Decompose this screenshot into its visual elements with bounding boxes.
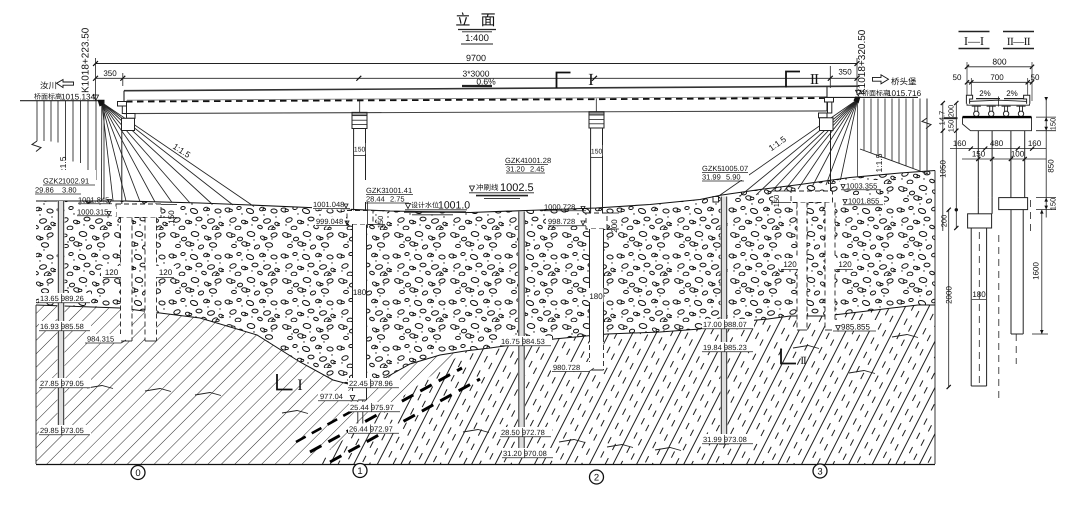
- svg-text:120: 120: [105, 268, 119, 277]
- svg-text:1002.91: 1002.91: [62, 177, 89, 186]
- svg-text:3: 3: [817, 466, 822, 477]
- svg-text:28.44: 28.44: [366, 195, 385, 204]
- svg-text:冲刷线: 冲刷线: [476, 183, 499, 192]
- svg-text:0.6%: 0.6%: [476, 76, 496, 86]
- svg-text:160: 160: [953, 139, 967, 148]
- svg-text:立 面: 立 面: [455, 12, 498, 29]
- svg-text:800: 800: [992, 57, 1006, 67]
- svg-text:25.44 975.97: 25.44 975.97: [350, 403, 394, 412]
- svg-text:1:1.5: 1:1.5: [874, 153, 884, 172]
- svg-text:150: 150: [1049, 198, 1058, 211]
- svg-text:19.84 985.23: 19.84 985.23: [703, 343, 747, 352]
- svg-text:998.728: 998.728: [548, 217, 575, 226]
- svg-text:200: 200: [947, 105, 956, 118]
- svg-text:设计水位: 设计水位: [411, 202, 439, 210]
- svg-text:150: 150: [591, 149, 603, 156]
- svg-text:0: 0: [135, 468, 140, 479]
- svg-text:999.048: 999.048: [316, 217, 343, 226]
- svg-text:150: 150: [972, 150, 986, 159]
- svg-text:I: I: [297, 377, 302, 394]
- svg-text:980.728: 980.728: [553, 363, 580, 372]
- svg-text:31.20 970.08: 31.20 970.08: [503, 449, 547, 458]
- svg-text:984.315: 984.315: [87, 335, 114, 344]
- svg-text:桥头堡: 桥头堡: [891, 77, 917, 87]
- svg-text:180: 180: [589, 292, 603, 301]
- svg-text:GZK2: GZK2: [43, 177, 63, 186]
- svg-text:1001.855: 1001.855: [848, 197, 879, 206]
- svg-text:120: 120: [159, 268, 173, 277]
- svg-text:985.855: 985.855: [841, 323, 870, 332]
- svg-text:150: 150: [772, 195, 781, 208]
- svg-text:2.45: 2.45: [530, 165, 545, 174]
- svg-text:31.20: 31.20: [506, 165, 525, 174]
- svg-text:29.85 973.05: 29.85 973.05: [40, 426, 84, 435]
- svg-text:150: 150: [376, 216, 385, 229]
- svg-text:26.44 972.97: 26.44 972.97: [349, 425, 393, 434]
- svg-text:K1018+223.50: K1018+223.50: [81, 27, 92, 93]
- svg-text:200: 200: [940, 215, 949, 228]
- svg-text:1002.5: 1002.5: [500, 182, 534, 194]
- svg-text:120: 120: [783, 260, 797, 269]
- svg-text:150: 150: [1049, 118, 1058, 131]
- svg-text:1: 1: [357, 466, 362, 477]
- svg-text:27.85 979.05: 27.85 979.05: [40, 379, 84, 388]
- svg-text:700: 700: [990, 73, 1004, 82]
- svg-text:II: II: [810, 72, 819, 88]
- svg-text:1:400: 1:400: [465, 33, 489, 44]
- svg-text:9700: 9700: [466, 53, 486, 63]
- svg-text:1000.315: 1000.315: [77, 208, 108, 217]
- svg-text:150: 150: [947, 120, 956, 133]
- svg-text:2%: 2%: [1006, 89, 1018, 98]
- svg-text:22.45 978.96: 22.45 978.96: [349, 379, 393, 388]
- svg-text:I: I: [588, 70, 594, 89]
- svg-text:桥面标高: 桥面标高: [34, 93, 62, 101]
- svg-text:977.04: 977.04: [320, 392, 343, 401]
- svg-text:1001.048: 1001.048: [313, 200, 344, 209]
- svg-text:29.86: 29.86: [35, 186, 54, 195]
- svg-text:2.75: 2.75: [390, 195, 405, 204]
- svg-text:850: 850: [1047, 159, 1056, 173]
- svg-text:2%: 2%: [979, 89, 991, 98]
- svg-text:5.90: 5.90: [726, 173, 741, 182]
- svg-text:2: 2: [594, 472, 599, 483]
- svg-text:31.99 973.08: 31.99 973.08: [703, 435, 747, 444]
- svg-text:II—II: II—II: [1007, 36, 1031, 48]
- svg-text:1600: 1600: [1032, 262, 1041, 280]
- svg-text:1050: 1050: [939, 160, 948, 178]
- svg-text:13.65 989.26: 13.65 989.26: [40, 294, 84, 303]
- svg-text:17.00 988.07: 17.00 988.07: [703, 320, 747, 329]
- svg-text:1001.845: 1001.845: [78, 196, 109, 205]
- svg-text:1003.355: 1003.355: [846, 182, 877, 191]
- svg-text:汝川: 汝川: [40, 81, 57, 91]
- svg-text:2000: 2000: [945, 286, 954, 304]
- svg-text:14.7: 14.7: [938, 111, 947, 126]
- svg-text:200: 200: [610, 219, 619, 233]
- svg-text:I—I: I—I: [964, 34, 984, 48]
- svg-text:3.80: 3.80: [62, 186, 77, 195]
- svg-text:1000.728: 1000.728: [544, 203, 575, 212]
- svg-text:120: 120: [838, 260, 852, 269]
- svg-text:1015.716: 1015.716: [887, 89, 922, 98]
- svg-text:150: 150: [167, 210, 176, 224]
- svg-text:150: 150: [354, 147, 366, 154]
- svg-text:K1018+320.50: K1018+320.50: [857, 29, 868, 95]
- svg-text:16.75 984.53: 16.75 984.53: [501, 337, 545, 346]
- svg-text:180: 180: [353, 288, 367, 297]
- svg-text:350: 350: [103, 69, 117, 78]
- svg-text:50: 50: [953, 73, 962, 82]
- svg-text:28.50 972.78: 28.50 972.78: [501, 428, 545, 437]
- svg-text:480: 480: [990, 139, 1004, 148]
- svg-text:160: 160: [1028, 139, 1042, 148]
- svg-text:16.93 985.58: 16.93 985.58: [40, 322, 84, 331]
- svg-text:350: 350: [838, 68, 852, 77]
- svg-text:31.99: 31.99: [702, 173, 721, 182]
